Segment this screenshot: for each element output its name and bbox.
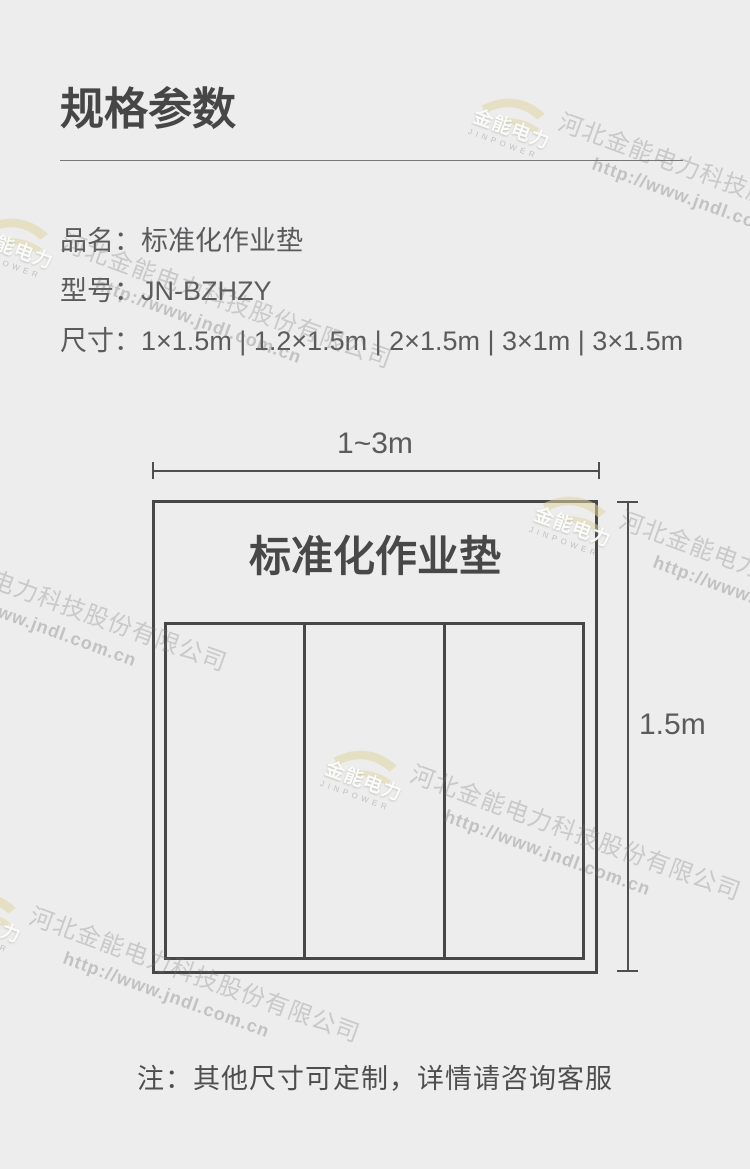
spec-row-sizes: 尺寸：1×1.5m | 1.2×1.5m | 2×1.5m | 3×1m | 3… bbox=[60, 327, 683, 357]
height-dimension-tick-bottom bbox=[617, 970, 638, 972]
jinpower-swoosh-icon bbox=[0, 875, 24, 932]
spec-row-product-name: 品名：标准化作业垫 bbox=[60, 227, 303, 257]
mat-label: 标准化作业垫 bbox=[155, 536, 595, 578]
jinpower-logo: 金能电力 JINPOWER bbox=[467, 80, 555, 160]
spec-value: 标准化作业垫 bbox=[141, 226, 303, 256]
watermark-company-text: 河北金能电力科技股份有限公司 bbox=[554, 110, 750, 255]
spec-row-model: 型号：JN-BZHZY bbox=[60, 277, 272, 307]
width-dimension-line bbox=[152, 470, 600, 472]
height-dimension-line bbox=[627, 502, 629, 972]
mat-outline: 标准化作业垫 bbox=[152, 500, 598, 974]
jinpower-swoosh-icon bbox=[0, 201, 56, 258]
spec-label: 型号： bbox=[60, 276, 141, 306]
watermark-tile: 金能电力 JINPOWER 河北金能电力科技股份有限公司 http://www.… bbox=[467, 80, 750, 283]
mat-inner-panel bbox=[164, 622, 585, 960]
title-divider bbox=[60, 160, 683, 161]
jinpower-logo: 金能电力 JINPOWER bbox=[0, 200, 58, 280]
mat-column bbox=[167, 625, 303, 957]
watermark-url-text: http://www.jndl.com.cn bbox=[589, 154, 750, 278]
page-title: 规格参数 bbox=[60, 88, 236, 132]
logo-en-text: JINPOWER bbox=[0, 247, 41, 280]
watermark-url-text: http://www.jndl.com.cn bbox=[650, 552, 750, 676]
jinpower-logo: 金能电力 JINPOWER bbox=[0, 874, 26, 954]
width-dimension-tick-right bbox=[598, 462, 600, 479]
logo-cn-text: 金能电力 bbox=[0, 227, 48, 269]
width-dimension-label: 1~3m bbox=[152, 429, 598, 459]
custom-size-note: 注：其他尺寸可定制，详情请咨询客服 bbox=[0, 1057, 750, 1096]
watermark-company-text: 河北金能电力科技股份有限公司 bbox=[615, 508, 750, 653]
logo-en-text: JINPOWER bbox=[0, 921, 9, 954]
spec-sheet-page: 规格参数 品名：标准化作业垫 型号：JN-BZHZY 尺寸：1×1.5m | 1… bbox=[0, 0, 750, 1169]
spec-value: JN-BZHZY bbox=[141, 276, 272, 306]
mat-column bbox=[303, 625, 442, 957]
logo-cn-text: 金能电力 bbox=[0, 901, 16, 943]
spec-value: 1×1.5m | 1.2×1.5m | 2×1.5m | 3×1m | 3×1.… bbox=[141, 326, 683, 356]
height-dimension-tick-top bbox=[617, 501, 638, 503]
jinpower-swoosh-icon bbox=[477, 81, 553, 138]
spec-label: 尺寸： bbox=[60, 326, 141, 356]
logo-en-text: JINPOWER bbox=[467, 127, 538, 160]
logo-cn-text: 金能电力 bbox=[471, 107, 545, 149]
spec-label: 品名： bbox=[60, 226, 141, 256]
mat-column bbox=[443, 625, 582, 957]
width-dimension-tick-left bbox=[152, 462, 154, 479]
height-dimension-label: 1.5m bbox=[639, 710, 706, 740]
